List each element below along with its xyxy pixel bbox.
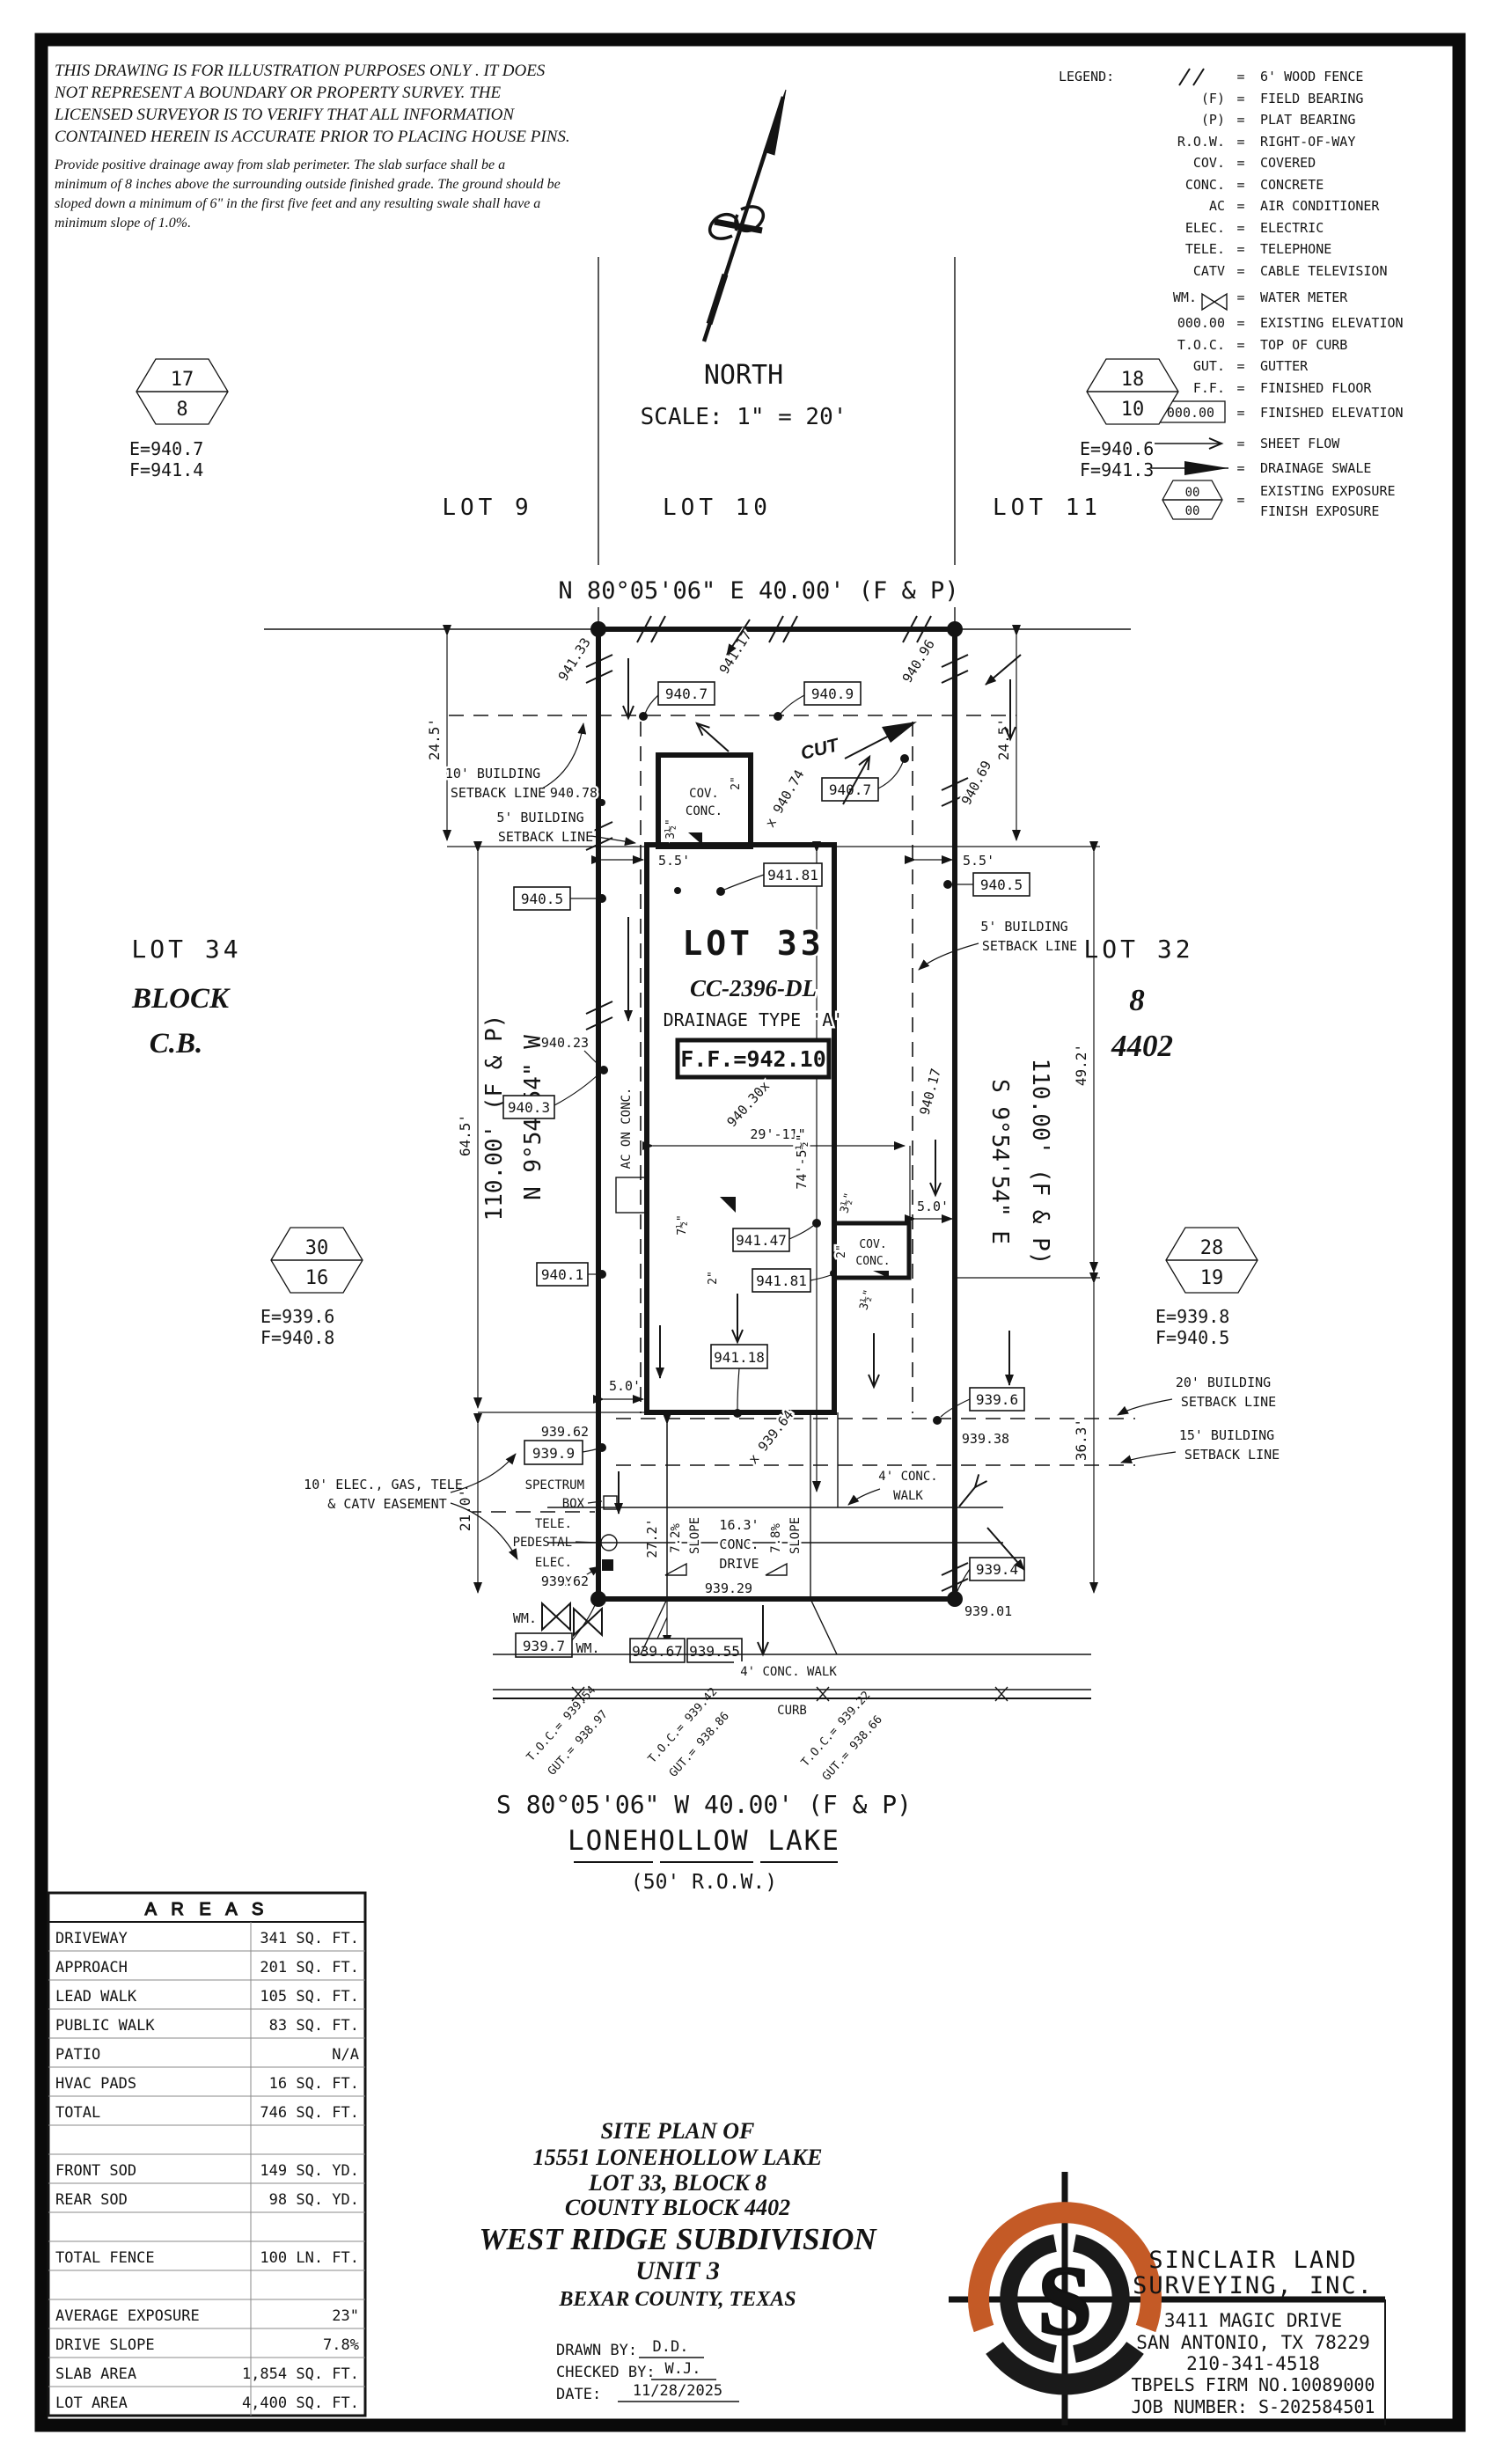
firm-number: TBPELS FIRM NO.10089000 (1132, 2374, 1375, 2395)
finished-elevation: 940.1 (541, 1266, 583, 1283)
setback-line-label: SETBACK LINE (1184, 1447, 1280, 1463)
leader (1121, 1452, 1176, 1463)
legend-desc: TELEPHONE (1260, 241, 1331, 257)
property-boundary (598, 629, 955, 1599)
table-row-value: 100 LN. FT. (260, 2249, 359, 2267)
table-row-value: 16 SQ. FT. (269, 2075, 359, 2093)
lot32-label: LOT 32 (1083, 935, 1193, 964)
spot-elevation: x 940.74 (762, 767, 808, 831)
table-row-label: REAR SOD (55, 2191, 128, 2209)
legend-eq: = (1236, 155, 1244, 171)
legend-desc: ELECTRIC (1260, 220, 1324, 236)
firm-phone: 210-341-4518 (1186, 2353, 1320, 2374)
table-row-value: 105 SQ. FT. (260, 1988, 359, 2006)
table-row-label: LEAD WALK (55, 1988, 137, 2006)
dim-label: 3½" (857, 1288, 876, 1312)
finished-elevation: 940.5 (980, 876, 1023, 893)
setback-5-label: 5' BUILDING (980, 919, 1067, 935)
setback-line-label: SETBACK LINE (498, 829, 593, 845)
lot10-label: LOT 10 (663, 495, 772, 521)
finished-elevation: 941.81 (767, 867, 818, 884)
spot-elevation: 941.33 (555, 635, 594, 684)
dim-label: 2" (835, 1244, 848, 1258)
spot-elevation: 940.30x (723, 1078, 773, 1130)
bm-e: E=939.6 (260, 1306, 334, 1327)
title-county-block: COUNTY BLOCK 4402 (565, 2195, 790, 2220)
finished-elevation: 939.55 (689, 1643, 740, 1660)
setback-line-label: SETBACK LINE (451, 785, 546, 801)
table-row-label: AVERAGE EXPOSURE (55, 2307, 200, 2325)
bm-existing: 18 (1121, 369, 1145, 391)
finished-elevation: 939.67 (632, 1643, 683, 1660)
gut-label: GUT.= 938.66 (820, 1713, 885, 1784)
legend-desc: FINISH EXPOSURE (1260, 503, 1379, 519)
table-row-value: 149 SQ. YD. (260, 2162, 359, 2180)
leader (1118, 1399, 1172, 1415)
dim-label: 49.2' (1073, 1044, 1089, 1086)
legend-key: 000.00 (1167, 405, 1214, 421)
legend-key: WM. (1173, 290, 1197, 305)
spot-elevation: 940.17 (916, 1067, 943, 1117)
title-subdivision: WEST RIDGE SUBDIVISION (479, 2222, 877, 2256)
drainage-note-line: Provide positive drainage away from slab… (54, 158, 505, 172)
setback-10-label: 10' BUILDING (445, 766, 540, 781)
legend-key: (F) (1201, 91, 1225, 106)
drainage-swale-arrows (619, 620, 1024, 1570)
public-walk-label: 4' CONC. (878, 1470, 937, 1484)
table-row-value: 201 SQ. FT. (260, 1959, 359, 1976)
lot34-label: LOT 34 (131, 935, 241, 964)
east-distance-label: 110.00' (F & P) (1027, 1059, 1053, 1265)
scale-label: SCALE: 1" = 20' (641, 404, 847, 430)
dim-label: 5.5' (963, 853, 994, 869)
site-plan-sheet: THIS DRAWING IS FOR ILLUSTRATION PURPOSE… (0, 0, 1496, 2464)
table-row-label: TOTAL FENCE (55, 2249, 155, 2267)
table-row-label: TOTAL (55, 2104, 100, 2122)
conc-label: CONC. (855, 1255, 890, 1268)
drive-label: CONC. (719, 1536, 759, 1552)
table-row-label: HVAC PADS (55, 2075, 136, 2093)
legend-desc: GUTTER (1260, 358, 1309, 374)
curb-label: CURB (777, 1704, 807, 1718)
easement-label: 10' ELEC., GAS, TELE. (304, 1477, 471, 1492)
legend-key: COV. (1193, 155, 1225, 171)
spot-elevation: 939.62 (541, 1424, 589, 1440)
legend-desc: FINISHED ELEVATION (1260, 405, 1404, 421)
legend-eq: = (1236, 220, 1244, 236)
disclaimer-line: LICENSED SURVEYOR IS TO VERIFY THAT ALL … (54, 106, 515, 124)
table-row-value: 98 SQ. YD. (269, 2191, 359, 2209)
setback-line-label: SETBACK LINE (1181, 1394, 1276, 1410)
table-row-label: APPROACH (55, 1959, 128, 1976)
legend-desc: 6' WOOD FENCE (1260, 69, 1363, 84)
cb4402-label: 4402 (1111, 1029, 1173, 1063)
logo-s: S (1038, 2247, 1092, 2356)
dim-label: 5.5' (658, 853, 690, 869)
lot9-label: LOT 9 (442, 495, 532, 521)
bm-existing: 28 (1200, 1237, 1224, 1259)
leader (848, 1489, 880, 1505)
legend-key: 000.00 (1177, 315, 1225, 331)
drive-label: 16.3' (719, 1517, 759, 1533)
finished-elevation: 940.9 (811, 686, 854, 702)
bm-finish: 19 (1200, 1267, 1224, 1289)
wm-label: WM. (513, 1610, 537, 1626)
bm-e: E=940.6 (1080, 438, 1154, 459)
legend-eq: = (1236, 405, 1244, 421)
finished-elevation: 939.7 (523, 1638, 565, 1654)
wood-fence-symbol (1179, 69, 1204, 85)
spot-elevation: 941.17 (716, 628, 755, 677)
firm-city: SAN ANTONIO, TX 78229 (1136, 2332, 1370, 2353)
dim-label: 3½" (664, 818, 678, 839)
block8-label: 8 (1129, 983, 1145, 1017)
bm-f: F=941.4 (129, 459, 203, 480)
slope-symbol (766, 1564, 787, 1575)
legend-eq: = (1236, 290, 1244, 305)
slope-symbol (665, 1564, 686, 1575)
north-bearing-label: N 80°05'06" E 40.00' (F & P) (558, 577, 958, 605)
legend-desc: AIR CONDITIONER (1260, 198, 1380, 214)
table-row-value: 4,400 SQ. FT. (242, 2394, 359, 2412)
dim-label: 3½" (838, 1192, 856, 1215)
bm-f: F=941.3 (1080, 459, 1154, 480)
firm-info: SINCLAIR LAND SURVEYING, INC. 3411 MAGIC… (1132, 2247, 1385, 2425)
legend-key: R.O.W. (1177, 134, 1225, 150)
legend-key: F.F. (1193, 380, 1225, 396)
legend-key: ELEC. (1185, 220, 1225, 236)
spot-elevation: 940.96 (899, 637, 938, 686)
legend-eq: = (1236, 436, 1244, 451)
spot-elevation: 940.23 (541, 1035, 589, 1051)
table-row-label: DRIVE SLOPE (55, 2336, 155, 2354)
areas-title: A R E A S (145, 1900, 269, 1919)
legend-eq: = (1236, 337, 1244, 353)
dim-label: 5.0' (609, 1378, 641, 1394)
tele-label: TELE. (535, 1517, 572, 1531)
gut-label: GUT.= 938.97 (546, 1708, 611, 1778)
legend-key: (P) (1201, 112, 1225, 128)
finished-elevation: 941.81 (756, 1272, 807, 1289)
table-row-value: N/A (332, 2046, 359, 2064)
table-row-label: DRIVEWAY (55, 1930, 128, 1947)
legend-eq: = (1236, 177, 1244, 193)
finished-elevation: 941.18 (714, 1349, 765, 1366)
table-row-label: LOT AREA (55, 2394, 128, 2412)
bm-e: E=939.8 (1155, 1306, 1229, 1327)
benchmark-28-19: 28 19 E=939.8 F=940.5 (1155, 1228, 1258, 1348)
legend-desc: RIGHT-OF-WAY (1260, 134, 1355, 150)
drawn-by-value: D.D. (653, 2338, 689, 2356)
cb-label: C.B. (150, 1028, 203, 1060)
table-row-label: PUBLIC WALK (55, 2017, 155, 2035)
bm-existing: 17 (171, 369, 194, 391)
exposure-hexagon-icon: 00 00 (1162, 480, 1222, 519)
fence-hatch-ticks (586, 616, 968, 1591)
conc-label: CONC. (686, 804, 722, 818)
table-row-value: 341 SQ. FT. (260, 1930, 359, 1947)
legend-eq: = (1236, 492, 1244, 508)
table-row-value: 23" (332, 2307, 359, 2325)
title-line: SITE PLAN OF (601, 2118, 755, 2144)
elec-label: ELEC. (535, 1556, 572, 1570)
legend-desc: WATER METER (1260, 290, 1348, 305)
ac-pad (616, 1177, 647, 1213)
drawn-by-label: DRAWN BY: (556, 2342, 637, 2359)
legend-desc: EXISTING ELEVATION (1260, 315, 1404, 331)
cc-number: CC-2396-DL (690, 975, 817, 1001)
firm-address: 3411 MAGIC DRIVE (1164, 2310, 1342, 2331)
table-row-value: 746 SQ. FT. (260, 2104, 359, 2122)
setback-20-label: 20' BUILDING (1176, 1375, 1271, 1390)
bm-f: F=940.5 (1155, 1327, 1229, 1348)
slope-word: SLOPE (788, 1517, 803, 1554)
dim-label: 5.0' (917, 1199, 949, 1214)
north-arrow-icon (704, 90, 786, 341)
legend-eq: = (1236, 91, 1244, 106)
legend-desc: COVERED (1260, 155, 1316, 171)
dim-label: 74'-5½" (794, 1133, 810, 1189)
leader (542, 723, 583, 788)
setback-line-label: SETBACK LINE (982, 938, 1077, 954)
setback-15-label: 15' BUILDING (1179, 1427, 1274, 1443)
drainage-type-label: DRAINAGE TYPE 'A' (664, 1009, 844, 1030)
street-name: LONEHOLLOW LAKE (568, 1825, 840, 1857)
finished-elevation: 940.7 (665, 686, 708, 702)
benchmark-17-8: 17 8 E=940.7 F=941.4 (129, 359, 228, 480)
drive-label: DRIVE (719, 1556, 759, 1572)
cut-label: CUT (799, 735, 843, 764)
spot-elevation: 939.62 (541, 1573, 589, 1589)
spectrum-box-label: BOX (562, 1497, 585, 1511)
legend-hex-bot: 00 (1185, 504, 1200, 518)
legend-desc: PLAT BEARING (1260, 112, 1355, 128)
dim-label: 36.3' (1073, 1419, 1089, 1461)
title-county: BEXAR COUNTY, TEXAS (558, 2288, 796, 2311)
ac-on-conc-label: AC ON CONC. (620, 1088, 634, 1170)
leader (919, 943, 979, 970)
drainage-swale-icon (1151, 461, 1228, 475)
legend-key: AC (1209, 198, 1225, 214)
spot-dots (598, 799, 737, 1274)
elec-box-icon (602, 1559, 613, 1571)
title-lot-block: LOT 33, BLOCK 8 (588, 2170, 766, 2196)
cov-label: COV. (859, 1238, 886, 1251)
legend-eq: = (1236, 315, 1244, 331)
finished-elevation: 940.5 (521, 891, 563, 907)
table-row-value: 1,854 SQ. FT. (242, 2365, 359, 2383)
spot-elevation: 939.29 (705, 1580, 752, 1596)
legend-eq: = (1236, 263, 1244, 279)
drainage-note-line: minimum slope of 1.0%. (55, 216, 191, 231)
lot33-label: LOT 33 (682, 924, 824, 963)
legend-desc: TOP OF CURB (1260, 337, 1347, 353)
legend-title: LEGEND: (1059, 69, 1114, 84)
bm-finish: 8 (176, 399, 187, 421)
bm-finish: 10 (1121, 399, 1145, 421)
table-row-value: 83 SQ. FT. (269, 2017, 359, 2035)
table-row-label: SLAB AREA (55, 2365, 136, 2383)
disclaimer-block: THIS DRAWING IS FOR ILLUSTRATION PURPOSE… (54, 62, 570, 231)
drainage-note-line: minimum of 8 inches above the surroundin… (55, 177, 561, 192)
benchmark-30-16: 30 16 E=939.6 F=940.8 (260, 1228, 363, 1348)
dim-label: 7½" (676, 1214, 689, 1235)
finished-elevation: 940.3 (508, 1099, 550, 1116)
bm-finish: 16 (305, 1267, 329, 1289)
lot-divider-lines (598, 257, 955, 624)
table-row-value: 7.8% (323, 2336, 359, 2354)
legend-key: GUT. (1193, 358, 1225, 374)
slope-word: SLOPE (688, 1517, 702, 1554)
dim-label: 2" (730, 776, 743, 790)
legend-hex-top: 00 (1185, 486, 1200, 500)
ff-elevation: F.F.=942.10 (680, 1046, 826, 1072)
firm-name: SINCLAIR LAND (1148, 2247, 1357, 2274)
parkway-walk-label: 4' CONC. WALK (740, 1665, 837, 1679)
legend-desc: EXISTING EXPOSURE (1260, 483, 1396, 499)
dim-label: 2" (707, 1271, 720, 1285)
finished-elevation: 940.7 (829, 781, 871, 798)
dim-label: 64.5' (457, 1114, 473, 1156)
bm-e: E=940.7 (129, 438, 203, 459)
wall-wedge (720, 1197, 736, 1213)
legend-desc: FIELD BEARING (1260, 91, 1363, 106)
finished-elevation: 939.9 (532, 1445, 575, 1462)
public-walk-label: WALK (893, 1489, 923, 1503)
legend-eq: = (1236, 69, 1244, 84)
finished-elevation: 939.6 (976, 1391, 1018, 1408)
date-label: DATE: (556, 2386, 601, 2403)
job-number: JOB NUMBER: S-202584501 (1132, 2396, 1375, 2417)
title-address: 15551 LONEHOLLOW LAKE (533, 2145, 823, 2170)
dim-label: 21.0' (457, 1489, 473, 1531)
legend-eq: = (1236, 241, 1244, 257)
spectrum-label: SPECTRUM (525, 1478, 584, 1492)
north-label: NORTH (704, 360, 783, 391)
row-width-label: (50' R.O.W.) (631, 1871, 777, 1894)
disclaimer-line: CONTAINED HEREIN IS ACCURATE PRIOR TO PL… (55, 128, 570, 146)
easement-label: & CATV EASEMENT (327, 1496, 446, 1512)
finished-elevation: 941.47 (736, 1232, 787, 1249)
legend-desc: FINISHED FLOOR (1260, 380, 1372, 396)
legend-desc: SHEET FLOW (1260, 436, 1340, 451)
legend-desc: CONCRETE (1260, 177, 1324, 193)
legend-eq: = (1236, 134, 1244, 150)
spot-elevation: 939.38 (962, 1431, 1009, 1447)
table-row-label: PATIO (55, 2046, 100, 2064)
legend-key: TELE. (1185, 241, 1225, 257)
legend-key: CATV (1193, 263, 1225, 279)
checked-by-value: W.J. (665, 2360, 701, 2378)
dim-label: 27.2' (644, 1518, 660, 1558)
checked-by-label: CHECKED BY: (556, 2364, 656, 2381)
legend-eq: = (1236, 358, 1244, 374)
legend-eq: = (1236, 460, 1244, 476)
table-row-label: FRONT SOD (55, 2162, 136, 2180)
legend-desc: CABLE TELEVISION (1260, 263, 1388, 279)
spot-elevation: 940.69 (958, 759, 994, 808)
disclaimer-line: NOT REPRESENT A BOUNDARY OR PROPERTY SUR… (54, 84, 501, 102)
firm-name: SURVEYING, INC. (1133, 2272, 1374, 2299)
dim-label: 24.5' (426, 718, 443, 760)
title-unit: UNIT 3 (635, 2256, 720, 2285)
bm-existing: 30 (305, 1237, 329, 1259)
drive-slope-label: 7.2% (669, 1523, 683, 1553)
date-value: 11/28/2025 (633, 2382, 722, 2400)
finished-elevation: 939.4 (976, 1561, 1018, 1578)
east-bearing-label: S 9°54'54" E (986, 1079, 1013, 1244)
spot-elevation: x 939.64 (745, 1407, 797, 1467)
lot11-label: LOT 11 (993, 495, 1102, 521)
legend-key: T.O.C. (1177, 337, 1225, 353)
water-meter-icon (1202, 294, 1227, 310)
disclaimer-line: THIS DRAWING IS FOR ILLUSTRATION PURPOSE… (55, 62, 546, 80)
cov-label: COV. (689, 787, 719, 801)
spot-elevation: 939.01 (964, 1603, 1012, 1619)
legend-eq: = (1236, 198, 1244, 214)
bm-f: F=940.8 (260, 1327, 334, 1348)
drainage-note-line: sloped down a minimum of 6" in the first… (55, 196, 540, 211)
setback-5-label: 5' BUILDING (496, 810, 583, 825)
spot-elevation: 940.78 (550, 785, 598, 801)
legend-eq: = (1236, 112, 1244, 128)
south-bearing-label: S 80°05'06" W 40.00' (F & P) (496, 1790, 912, 1819)
cut-arrow (845, 722, 917, 759)
legend-desc: DRAINAGE SWALE (1260, 460, 1371, 476)
gut-label: GUT.= 938.86 (667, 1710, 732, 1780)
block-label: BLOCK (131, 983, 231, 1015)
legend-key: CONC. (1185, 177, 1225, 193)
legend-eq: = (1236, 380, 1244, 396)
title-block: SITE PLAN OF 15551 LONEHOLLOW LAKE LOT 3… (479, 2118, 877, 2403)
drive-slope-label: 7.8% (769, 1523, 783, 1553)
areas-table: A R E A S DRIVEWAY341 SQ. FT. APPROACH20… (48, 1893, 365, 2416)
